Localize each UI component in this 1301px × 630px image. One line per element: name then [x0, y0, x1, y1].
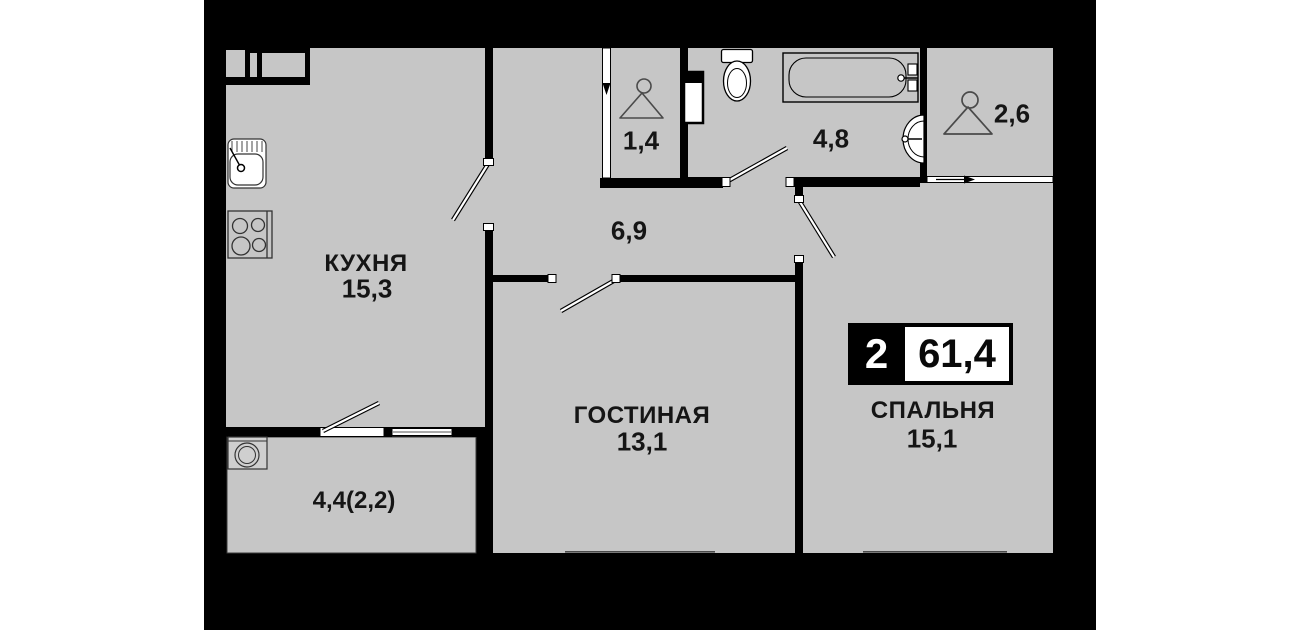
wall [792, 177, 920, 187]
vent-shaft [684, 72, 703, 123]
apartment-badge: 2 61,4 [848, 323, 1013, 385]
room-kitchen-floor [226, 48, 486, 427]
door-cap [786, 178, 794, 187]
floorplan-drawing [0, 0, 1301, 630]
window-pane [226, 50, 245, 77]
living-doorway-gap [555, 275, 616, 282]
kitchen-window [226, 48, 310, 85]
washing-machine-icon [228, 437, 267, 469]
bedroom-doorway-gap [795, 202, 803, 261]
wall [384, 427, 392, 437]
badge-area-box: 61,4 [905, 327, 1009, 381]
window-pane [262, 53, 305, 77]
door-cap [722, 178, 730, 187]
room-closet-small-floor [610, 48, 680, 178]
closet-large-area-label: 2,6 [994, 99, 1030, 130]
door-cap [484, 224, 494, 231]
bedroom-area-label: 15,1 [907, 424, 958, 455]
door-cap [548, 275, 556, 283]
thin-partition [603, 48, 611, 178]
kitchen-sink-icon [228, 139, 266, 188]
closet-small-area-label: 1,4 [623, 126, 659, 157]
wall [616, 275, 797, 282]
room-bathroom-floor [688, 48, 920, 177]
wall [452, 427, 485, 437]
kitchen-area-label: 15,3 [342, 274, 393, 305]
kitchen-doorway-gap [485, 166, 493, 224]
window-pane [250, 53, 257, 77]
wall [600, 178, 723, 188]
wall [493, 275, 555, 282]
wall [795, 261, 803, 553]
wall [227, 427, 320, 437]
hallway-area-label: 6,9 [611, 216, 647, 247]
closet-large-partition [927, 176, 1053, 184]
door-cap [612, 275, 620, 283]
entrance-partition [603, 48, 611, 178]
bedroom-name-label: СПАЛЬНЯ [871, 397, 995, 425]
badge-room-count: 2 [848, 323, 905, 385]
wall [485, 48, 493, 162]
bathroom-area-label: 4,8 [813, 124, 849, 155]
room-closet-large-floor [927, 48, 1053, 177]
living-area-label: 13,1 [617, 427, 668, 458]
toilet-icon [722, 50, 753, 102]
door-cap [484, 159, 494, 166]
floorplan-page: КУХНЯ 15,3 6,9 1,4 4,8 2,6 ГОСТИНАЯ 13,1… [0, 0, 1301, 630]
door-cap [795, 256, 804, 263]
wall [485, 230, 493, 553]
balcony-area-label: 4,4(2,2) [313, 487, 396, 515]
door-cap [795, 196, 804, 203]
badge-total-area: 61,4 [918, 332, 996, 377]
